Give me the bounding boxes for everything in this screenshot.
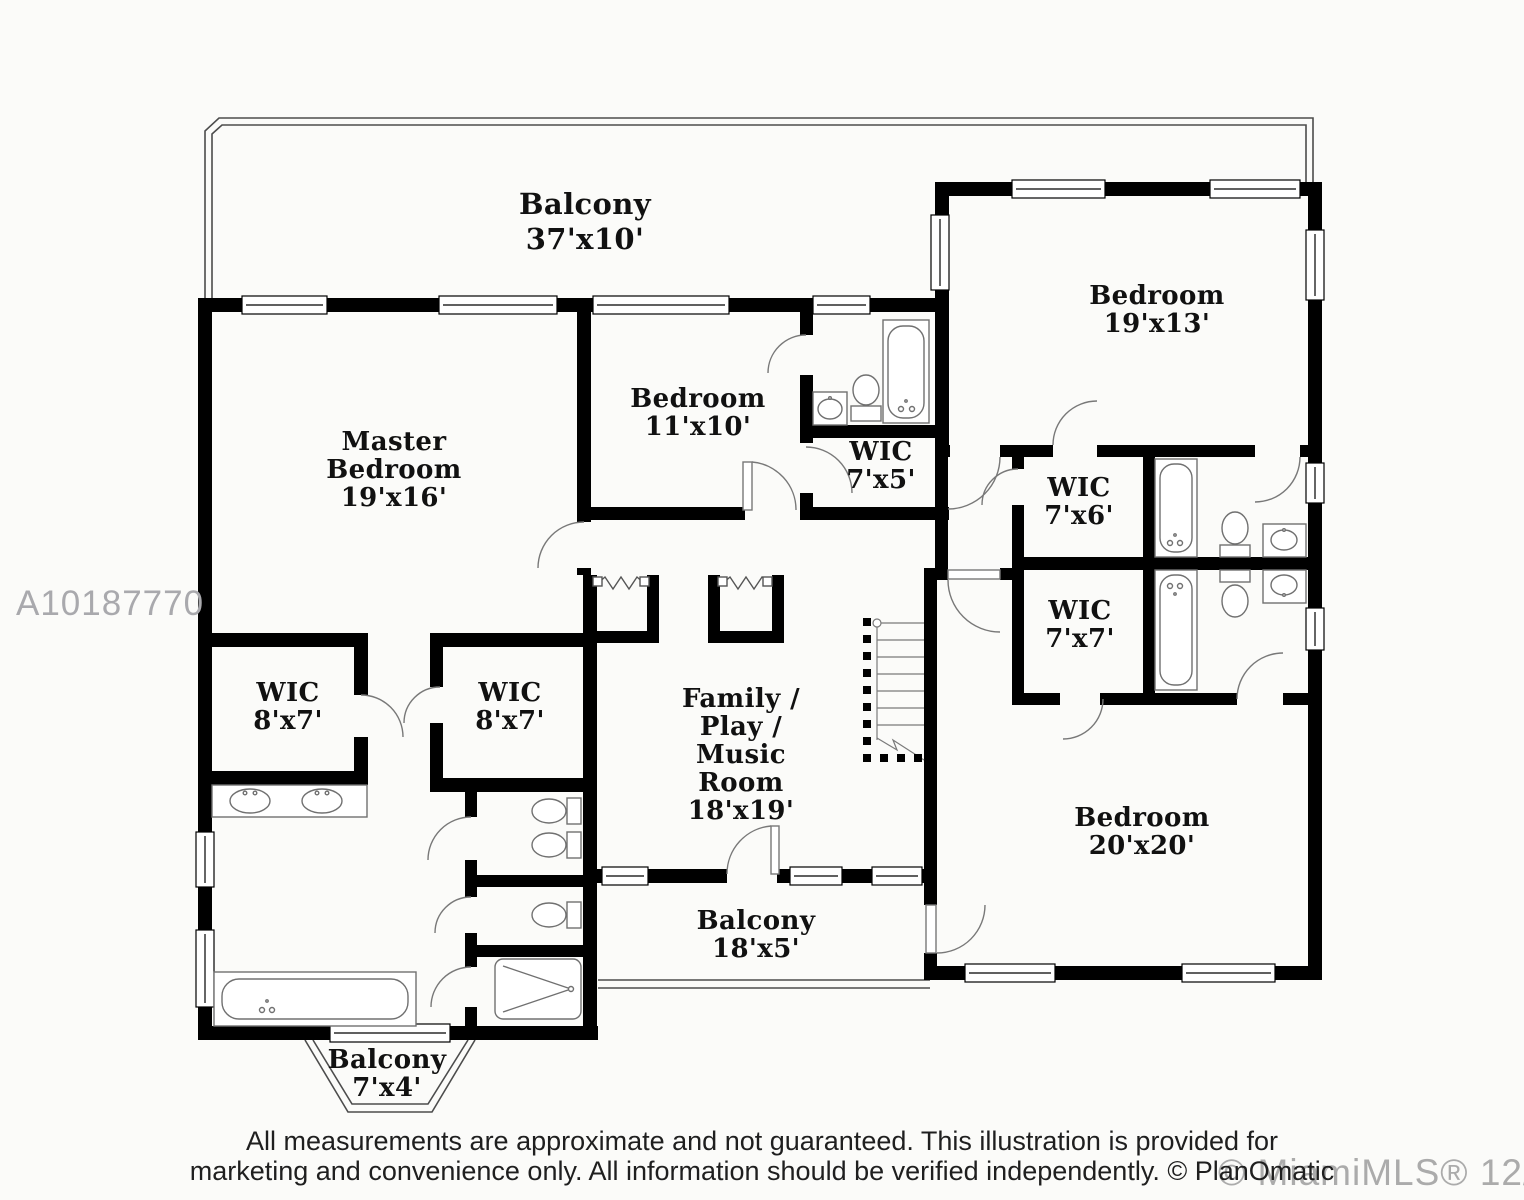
stairs <box>863 618 924 762</box>
room-label-wic-7x6: WIC 7'x6' <box>1044 474 1114 530</box>
bathtub <box>1155 570 1197 690</box>
disclaimer-line-2: marketing and convenience only. All info… <box>0 1156 1524 1186</box>
room-label-balcony-top: Balcony 37'x10' <box>519 187 651 257</box>
room-label-bedroom-top-right: Bedroom 19'x13' <box>1089 282 1224 338</box>
toilet <box>532 902 581 928</box>
sink-vanity <box>1263 570 1306 603</box>
sink-vanity <box>1263 524 1306 557</box>
floorplan-drawing <box>0 0 1524 1200</box>
toilet <box>532 798 581 824</box>
listing-id-watermark: A10187770 <box>16 584 204 624</box>
room-label-wic-8x7-right: WIC 8'x7' <box>475 679 545 735</box>
bathtub <box>1155 459 1197 557</box>
double-sink-vanity <box>212 785 367 817</box>
room-label-master-bedroom: Master Bedroom 19'x16' <box>326 428 461 512</box>
bathtub <box>214 972 416 1026</box>
floorplan-page: Balcony 37'x10' Bedroom 19'x13' Master B… <box>0 0 1524 1200</box>
sink-vanity <box>813 392 847 425</box>
room-label-wic-7x5: WIC 7'x5' <box>846 438 916 494</box>
disclaimer-text: All measurements are approximate and not… <box>0 1126 1524 1186</box>
bidet <box>532 832 581 858</box>
bathtub <box>883 320 929 423</box>
toilet <box>1220 512 1250 557</box>
toilet <box>851 375 881 421</box>
room-label-balcony-center: Balcony 18'x5' <box>697 907 816 963</box>
shower <box>495 959 581 1019</box>
room-label-bedroom-bottom-right: Bedroom 20'x20' <box>1074 804 1209 860</box>
closet-accordion-doors <box>593 577 772 589</box>
room-label-wic-8x7-left: WIC 8'x7' <box>253 679 323 735</box>
room-label-bedroom-center: Bedroom 11'x10' <box>630 385 765 441</box>
room-label-balcony-bay: Balcony 7'x4' <box>328 1046 447 1102</box>
room-label-family-room: Family / Play / Music Room 18'x19' <box>682 685 800 825</box>
disclaimer-line-1: All measurements are approximate and not… <box>0 1126 1524 1156</box>
room-label-wic-7x7: WIC 7'x7' <box>1045 597 1115 653</box>
toilet <box>1220 570 1250 617</box>
